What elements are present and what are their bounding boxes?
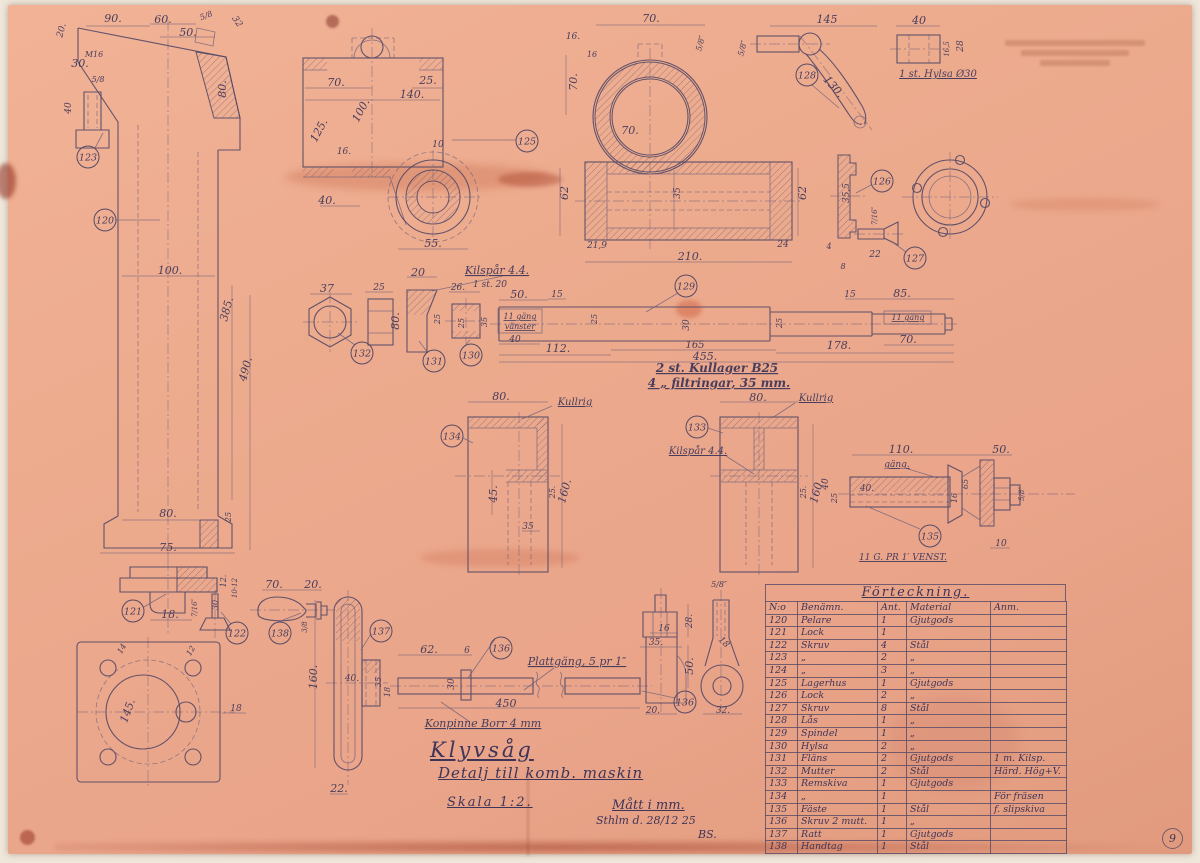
parts-cell: Lås — [798, 715, 878, 728]
dimension-label: 25 — [457, 318, 466, 329]
dimension-label: 4 „ filtringar, 35 mm. — [648, 376, 790, 390]
parts-cell: „ — [907, 664, 991, 677]
parts-row: 133Remskiva1Gjutgods — [766, 778, 1067, 791]
parts-col-header: Material — [907, 602, 991, 615]
dimension-label: 112. — [546, 342, 571, 355]
parts-cell: 131 — [766, 753, 798, 766]
parts-cell — [991, 639, 1067, 652]
dimension-label: 30 — [682, 319, 692, 331]
parts-cell: Gjutgods — [907, 614, 991, 627]
dimension-label: 5/8″ — [711, 580, 727, 589]
parts-cell: 4 — [878, 639, 907, 652]
dimension-label: 25 — [224, 512, 233, 523]
dimension-label: 25 — [590, 314, 599, 325]
parts-cell: 135 — [766, 803, 798, 816]
part-balloon-127: 127 — [904, 247, 926, 269]
dimension-label: 70. — [327, 76, 345, 89]
dimension-label: 90. — [104, 12, 122, 25]
parts-cell: „ — [907, 690, 991, 703]
view-lock-126 — [838, 155, 990, 245]
part-balloon-129: 129 — [675, 275, 697, 297]
dimension-label: Plattgäng, 5 pr 1″ — [527, 655, 627, 668]
dimension-label: 450 — [495, 697, 517, 710]
dimension-label: 210. — [677, 250, 703, 263]
dimension-label: 70. — [265, 578, 283, 591]
part-balloon-122: 122 — [226, 622, 248, 644]
parts-cell: 1 — [878, 727, 907, 740]
parts-cell: Skruv — [798, 639, 878, 652]
parts-col-header: N:o — [766, 602, 798, 615]
svg-text:129: 129 — [677, 282, 695, 293]
view-gaffel-136 — [643, 595, 743, 707]
parts-cell: 136 — [766, 816, 798, 829]
parts-cell — [991, 627, 1067, 640]
parts-row: 136Skruv 2 mutt.1„ — [766, 816, 1067, 829]
place-date: Sthlm d. 28/12 25 — [596, 814, 696, 827]
dimension-label: 25 — [433, 314, 442, 325]
dimension-label: 62 — [796, 186, 809, 200]
dimension-label: 12 — [184, 644, 197, 657]
dimension-label: 50. — [683, 657, 696, 675]
dimension-label: 80. — [749, 391, 767, 404]
dimension-label: 7/16″ — [871, 206, 879, 225]
dimension-label: 45. — [487, 485, 500, 504]
parts-cell — [991, 664, 1067, 677]
parts-cell: Pelare — [798, 614, 878, 627]
parts-row: 137Ratt1Gjutgods — [766, 828, 1067, 841]
svg-text:126: 126 — [873, 177, 891, 188]
parts-cell: 1 — [878, 841, 907, 854]
dimension-label: 40 — [508, 335, 521, 345]
parts-row: 122Skruv4Stål — [766, 639, 1067, 652]
part-balloon-135: 135 — [919, 525, 941, 547]
parts-row: 121Lock1 — [766, 627, 1067, 640]
parts-table-title: Förteckning. — [765, 584, 1066, 601]
svg-text:134: 134 — [443, 432, 461, 443]
part-balloon-123: 123 — [77, 146, 99, 168]
dimension-label: 16 — [658, 624, 670, 634]
dimension-label: 35 — [522, 522, 534, 532]
dimension-label: 15 — [844, 290, 856, 300]
parts-cell: 2 — [878, 765, 907, 778]
dimension-label: 490. — [236, 356, 255, 384]
drawing-title: Klyvsåg — [430, 738, 534, 762]
parts-cell: Lock — [798, 627, 878, 640]
parts-cell — [991, 614, 1067, 627]
parts-row: 132Mutter2StålHärd. Hög+V. — [766, 765, 1067, 778]
dimension-label: 24 — [776, 240, 789, 250]
parts-cell: 128 — [766, 715, 798, 728]
parts-cell: Gjutgods — [907, 753, 991, 766]
parts-cell: 121 — [766, 627, 798, 640]
dimension-label: 6 — [464, 646, 470, 656]
svg-text:136: 136 — [492, 644, 510, 655]
parts-cell: Stål — [907, 841, 991, 854]
parts-cell: 122 — [766, 639, 798, 652]
dimension-label: 40. — [344, 674, 359, 684]
dimension-label: 40 — [911, 14, 926, 27]
parts-cell: Skruv — [798, 702, 878, 715]
dimension-label: 7/16″ — [191, 598, 199, 617]
svg-text:123: 123 — [79, 153, 97, 164]
parts-cell: 1 — [878, 614, 907, 627]
dimension-label: 50. — [510, 288, 528, 301]
parts-cell: 2 — [878, 740, 907, 753]
dimension-label: 80. — [389, 312, 402, 330]
dimension-label: 1 st. 20 — [473, 280, 507, 290]
parts-cell: Fäste — [798, 803, 878, 816]
parts-cell: „ — [907, 727, 991, 740]
dimension-label: 50. — [179, 26, 197, 39]
dimension-label: 18. — [161, 608, 179, 621]
parts-cell: Remskiva — [798, 778, 878, 791]
parts-cell: Stål — [907, 803, 991, 816]
dimension-label: 100. — [158, 264, 183, 277]
dimension-label: 18 — [383, 687, 392, 697]
dimension-label: 160. — [555, 478, 574, 505]
dimension-label: 5/8 — [199, 9, 214, 22]
parts-row: 130Hylsa2„ — [766, 740, 1067, 753]
parts-cell: Stål — [907, 639, 991, 652]
dimension-label: 55. — [424, 237, 442, 250]
parts-cell: 1 — [878, 816, 907, 829]
dimension-label: 11 gäng — [892, 313, 925, 322]
svg-text:125: 125 — [518, 137, 536, 148]
svg-text:120: 120 — [96, 216, 114, 227]
dimension-label: 145. — [117, 697, 138, 724]
parts-cell: „ — [907, 652, 991, 665]
dimension-label: vänster — [505, 322, 536, 331]
dimension-label: 70. — [567, 73, 580, 91]
dimension-label: 28. — [685, 614, 695, 629]
dimension-label: 4 — [825, 242, 831, 251]
dimension-label: Kullrig — [557, 397, 592, 408]
scale-note: Skala 1:2. — [447, 795, 533, 810]
parts-cell: f. slipskiva — [991, 803, 1067, 816]
dimension-label: 62 — [558, 186, 571, 200]
parts-cell: Mutter — [798, 765, 878, 778]
parts-cell: Härd. Hög+V. — [991, 765, 1067, 778]
parts-cell: 3 — [878, 664, 907, 677]
dimension-label: 80. — [159, 507, 177, 520]
units-note: Mått i mm. — [612, 798, 685, 813]
dimension-label: 60. — [154, 13, 172, 26]
dimension-label: Kilspår 4.4. — [464, 264, 529, 277]
svg-text:137: 137 — [372, 627, 391, 638]
parts-cell: 1 — [878, 790, 907, 803]
dimension-label: 25 — [830, 493, 839, 504]
parts-cell: 1 m. Kilsp. — [991, 753, 1067, 766]
parts-cell: Ratt — [798, 828, 878, 841]
dimension-label: 22 — [868, 250, 881, 260]
svg-text:133: 133 — [688, 423, 706, 434]
dimension-label: 10 — [995, 539, 1007, 549]
dimension-label: 25 — [372, 283, 385, 293]
dimension-label: 110. — [889, 443, 914, 456]
dimension-label: 5/8 — [92, 75, 105, 84]
dimension-label: 65 — [961, 479, 970, 489]
parts-cell: „ — [798, 790, 878, 803]
parts-row: 120Pelare1Gjutgods — [766, 614, 1067, 627]
parts-cell: Fläns — [798, 753, 878, 766]
dimension-label: 16. — [337, 147, 351, 157]
dimension-label: 145 — [817, 13, 838, 26]
parts-cell — [991, 677, 1067, 690]
dimension-label: 85. — [893, 287, 911, 300]
dimension-label: 62. — [420, 643, 438, 656]
parts-cell: 130 — [766, 740, 798, 753]
dimension-label: 5/8″ — [1018, 487, 1026, 501]
dimension-label: 40 — [64, 102, 74, 115]
dimension-label: 16,5 — [943, 41, 951, 57]
dimension-label: 25. — [799, 486, 808, 500]
parts-cell — [991, 816, 1067, 829]
signature: BS. — [698, 828, 717, 841]
parts-cell: „ — [907, 715, 991, 728]
parts-cell: 1 — [878, 778, 907, 791]
part-balloon-136: 136 — [490, 637, 512, 659]
dimension-label: 5/8″ — [736, 40, 749, 58]
dimension-label: 20. — [55, 22, 69, 40]
parts-cell: Lagerhus — [798, 677, 878, 690]
dimension-label: 21,9 — [586, 241, 607, 251]
parts-cell: Gjutgods — [907, 778, 991, 791]
dimension-label: 20. — [645, 706, 660, 716]
dimension-label: gäng. — [884, 460, 910, 470]
mirrored-ink-stamp — [1000, 36, 1150, 70]
dimension-label: 30 — [447, 678, 457, 690]
dimension-label: 75. — [159, 541, 177, 554]
dimension-label: 100. — [349, 96, 372, 124]
svg-text:128: 128 — [798, 71, 816, 82]
dimension-label: 16 — [950, 493, 959, 503]
view-faste-135 — [850, 460, 1020, 526]
parts-cell: 127 — [766, 702, 798, 715]
parts-cell: Gjutgods — [907, 828, 991, 841]
svg-text:122: 122 — [228, 629, 246, 640]
dimension-label: 70. — [621, 124, 639, 137]
dimension-label: 20. — [303, 578, 322, 591]
dimension-label: 8 — [840, 262, 845, 271]
dimension-label: 32 — [229, 14, 244, 29]
parts-cell — [991, 727, 1067, 740]
dimension-label: 32. — [716, 706, 730, 716]
parts-cell: Hylsa — [798, 740, 878, 753]
view-mutter-132 — [309, 297, 393, 347]
dimension-label: 40. — [859, 484, 874, 494]
part-balloon-121: 121 — [122, 600, 144, 622]
dimension-label: 30. — [71, 57, 89, 70]
part-balloon-131: 131 — [423, 350, 445, 372]
dimension-label: 35 — [480, 317, 489, 327]
parts-cell — [991, 652, 1067, 665]
parts-cell: 123 — [766, 652, 798, 665]
view-handtag-138 — [258, 597, 327, 621]
dimension-label: 70. — [642, 12, 660, 25]
parts-row: 131Fläns2Gjutgods1 m. Kilsp. — [766, 753, 1067, 766]
parts-cell: 8 — [878, 702, 907, 715]
dimension-label: 35,5 — [842, 183, 852, 203]
dimension-label: 35 — [673, 187, 683, 199]
dimension-label: 35 — [374, 677, 383, 687]
parts-cell: Stål — [907, 765, 991, 778]
dimension-label: 10-12 — [231, 577, 239, 598]
svg-text:136: 136 — [676, 698, 694, 709]
parts-cell: 126 — [766, 690, 798, 703]
stamp-smudge — [1005, 40, 1145, 46]
part-balloon-130: 130 — [460, 344, 482, 366]
parts-cell — [991, 828, 1067, 841]
dimension-label: 30 — [211, 600, 220, 610]
parts-cell: 129 — [766, 727, 798, 740]
parts-cell: 1 — [878, 715, 907, 728]
dimension-label: 15 — [551, 290, 563, 300]
parts-row: 134„1För fräsen — [766, 790, 1067, 803]
parts-cell — [991, 841, 1067, 854]
part-balloon-125: 125 — [516, 130, 538, 152]
parts-cell — [991, 778, 1067, 791]
dimension-label: 14 — [115, 642, 128, 655]
parts-cell: 138 — [766, 841, 798, 854]
parts-cell: 1 — [878, 803, 907, 816]
page-number: 9 — [1162, 828, 1183, 849]
parts-cell: 1 — [878, 828, 907, 841]
parts-cell: „ — [798, 664, 878, 677]
dimension-label: 16 — [587, 50, 597, 59]
dimension-label: 37 — [320, 282, 334, 295]
dimension-label: 40 — [821, 478, 831, 491]
dimension-label: Konpinne Borr 4 mm — [424, 717, 541, 730]
dimension-label: 178. — [827, 339, 852, 352]
parts-col-header: Benämn. — [798, 602, 878, 615]
parts-row: 127Skruv8Stål — [766, 702, 1067, 715]
stamp-smudge — [1021, 50, 1129, 56]
parts-cell — [991, 690, 1067, 703]
parts-cell: Gjutgods — [907, 677, 991, 690]
dimension-label: 80. — [216, 80, 229, 98]
dimension-label: 80. — [492, 390, 510, 403]
part-balloon-137: 137 — [370, 620, 392, 642]
part-balloon-134: 134 — [441, 425, 463, 447]
parts-cell — [907, 627, 991, 640]
part-balloon-120: 120 — [94, 209, 116, 231]
part-balloon-133: 133 — [686, 416, 708, 438]
dimension-label: 11 G. PR 1′ VENST. — [859, 553, 947, 563]
parts-col-header: Anm. — [991, 602, 1067, 615]
parts-table-header: N:oBenämn.Ant.MaterialAnm. — [766, 602, 1067, 615]
part-balloon-132: 132 — [351, 342, 373, 364]
dimension-label: 3/8 — [301, 621, 309, 633]
parts-cell — [907, 790, 991, 803]
part-balloon-126: 126 — [871, 170, 893, 192]
parts-cell: 125 — [766, 677, 798, 690]
dimension-label: 40. — [317, 194, 336, 207]
dimension-label: 1 st. Hylsa Ø30 — [899, 69, 977, 80]
dimension-label: 12. — [219, 575, 228, 588]
svg-text:131: 131 — [425, 357, 443, 368]
parts-cell: 1 — [878, 627, 907, 640]
view-lagerhus-125 — [585, 60, 792, 240]
svg-text:130: 130 — [462, 351, 480, 362]
parts-cell: 124 — [766, 664, 798, 677]
parts-cell: Spindel — [798, 727, 878, 740]
parts-table: Förteckning. N:oBenämn.Ant.MaterialAnm. … — [765, 584, 1066, 854]
dimension-label: 28 — [956, 40, 966, 53]
drawing-subtitle: Detalj till komb. maskin — [438, 764, 643, 782]
parts-cell: 2 — [878, 652, 907, 665]
parts-cell: 2 — [878, 753, 907, 766]
parts-row: 129Spindel1„ — [766, 727, 1067, 740]
dimension-label: 10 — [432, 140, 444, 150]
parts-cell — [991, 702, 1067, 715]
dimension-label: 2 st. Kullager B25 — [655, 361, 778, 375]
dimension-label: 5/8″ — [694, 35, 707, 53]
parts-row: 123„2„ — [766, 652, 1067, 665]
dimension-label: 125. — [307, 116, 330, 144]
dimension-label: 70. — [899, 333, 917, 346]
dimension-label: 18 — [230, 704, 242, 714]
parts-row: 128Lås1„ — [766, 715, 1067, 728]
dimension-label: 16. — [566, 32, 580, 42]
dimension-label: 140. — [400, 88, 425, 101]
parts-cell: Handtag — [798, 841, 878, 854]
part-balloon-128: 128 — [796, 64, 818, 86]
parts-row: 124„3„ — [766, 664, 1067, 677]
dimension-label: 35. — [649, 638, 663, 648]
svg-text:127: 127 — [906, 254, 925, 265]
parts-cell: 132 — [766, 765, 798, 778]
dimension-label: 26. — [450, 283, 465, 293]
dimension-label: 25 — [775, 318, 784, 329]
parts-cell: 137 — [766, 828, 798, 841]
parts-col-header: Ant. — [878, 602, 907, 615]
part-balloon-136: 136 — [674, 691, 696, 713]
dimension-label: 22. — [329, 782, 348, 795]
parts-cell: „ — [798, 652, 878, 665]
parts-row: 135Fäste1Stålf. slipskiva — [766, 803, 1067, 816]
dimension-label: 385. — [217, 296, 236, 323]
svg-text:135: 135 — [921, 532, 939, 543]
dimension-label: 11 gäng — [504, 312, 537, 321]
parts-row: 126Lock2„ — [766, 690, 1067, 703]
blueprint-sheet: 20.90.60.50.5/832M1630.5/84080.100.385.4… — [0, 0, 1200, 863]
svg-text:132: 132 — [353, 349, 371, 360]
parts-row: 138Handtag1Stål — [766, 841, 1067, 854]
svg-text:121: 121 — [124, 607, 142, 618]
parts-cell: Skruv 2 mutt. — [798, 816, 878, 829]
parts-cell: För fräsen — [991, 790, 1067, 803]
parts-cell: „ — [907, 816, 991, 829]
parts-cell — [991, 740, 1067, 753]
parts-cell: Stål — [907, 702, 991, 715]
parts-cell — [991, 715, 1067, 728]
svg-text:138: 138 — [271, 629, 289, 640]
parts-row: 125Lagerhus1Gjutgods — [766, 677, 1067, 690]
parts-cell: „ — [907, 740, 991, 753]
dimension-label: 160. — [307, 665, 320, 690]
dimension-label: Kilspår 4.4. — [668, 445, 727, 457]
parts-cell: 134 — [766, 790, 798, 803]
parts-cell: 1 — [878, 677, 907, 690]
dimension-label: 25. — [418, 74, 437, 87]
parts-cell: 133 — [766, 778, 798, 791]
stamp-smudge — [1040, 60, 1110, 66]
parts-cell: 120 — [766, 614, 798, 627]
dimension-label: Kullrig — [798, 393, 833, 404]
view-skruv-136 — [398, 670, 640, 700]
part-balloon-138: 138 — [269, 622, 291, 644]
parts-cell: Lock — [798, 690, 878, 703]
